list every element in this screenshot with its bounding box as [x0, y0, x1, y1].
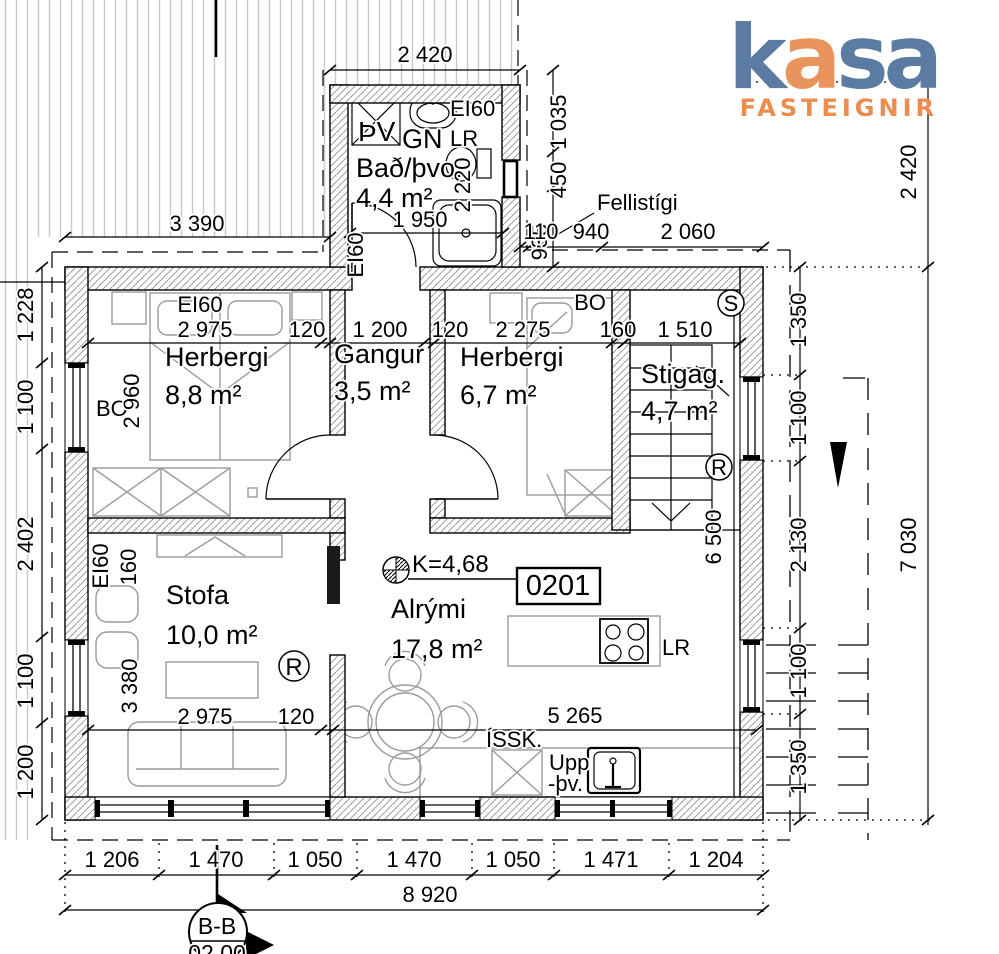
dim-160-top: 160 [600, 317, 637, 342]
dim-2402: 2 402 [13, 516, 38, 571]
dim-5265: 5 265 [547, 703, 602, 728]
exterior-hatch-door [504, 161, 517, 197]
dim-1200-left: 1 200 [13, 744, 38, 799]
dim-1510: 1 510 [657, 317, 712, 342]
window-right-1 [740, 377, 763, 460]
floorplan-page: S R R 0201 B-B 02 00 Bað/þvo. 4,4 m² Her… [0, 0, 999, 954]
dim-2275: 2 275 [495, 317, 550, 342]
unit-number-box: 0201 [517, 568, 600, 604]
dim-1050-b: 1 050 [485, 847, 540, 872]
section-sheet: 02 00 [188, 940, 246, 954]
room-area-bedroom1: 8,8 m² [165, 380, 242, 410]
dishwasher-label-2: -þv. [548, 771, 583, 796]
dim-1470-b: 1 470 [386, 847, 441, 872]
dim-1470-a: 1 470 [188, 847, 243, 872]
room-area-openplan: 17,8 m² [391, 634, 483, 664]
mark-r-label: R [285, 654, 302, 681]
dim-160-living: 160 [116, 549, 141, 586]
room-area-bedroom2: 6,7 m² [460, 380, 537, 410]
stove-icon [600, 619, 648, 663]
window-left-1 [65, 363, 88, 452]
sink-icon [588, 748, 640, 793]
dim-1350-right-b: 1 350 [786, 739, 811, 794]
window-bottom-3 [555, 797, 672, 820]
dim-2130: 2 130 [786, 517, 811, 572]
window-bottom-2 [420, 797, 480, 820]
dim-940: 940 [573, 219, 610, 244]
dim-1050-a: 1 050 [287, 847, 342, 872]
dim-1204: 1 204 [688, 847, 743, 872]
room-name-bedroom1: Herbergi [165, 342, 269, 372]
dim-7030: 7 030 [896, 517, 921, 572]
room-name-living: Stofa [166, 580, 230, 610]
mark-s-label: S [724, 291, 739, 316]
exterior-stair [766, 645, 868, 813]
dim-2975-top: 2 975 [177, 317, 232, 342]
dim-1100-right-b: 1 100 [786, 643, 811, 698]
dim-1200-hall: 1 200 [352, 317, 407, 342]
dim-1471: 1 471 [583, 847, 638, 872]
dim-1206: 1 206 [84, 847, 139, 872]
dim-3380: 3 380 [117, 658, 142, 713]
room-area-living: 10,0 m² [166, 620, 258, 650]
mark-r-label: R [711, 455, 727, 480]
fridge-label: ÍSSK. [486, 727, 542, 752]
dim-1100-left-a: 1 100 [13, 379, 38, 434]
dim-1035: 1 035 [546, 94, 571, 149]
dim-2975-bottom: 2 975 [177, 704, 232, 729]
smoke-detector-mark-s: S [718, 290, 744, 316]
room-name-bath: Bað/þvo. [356, 153, 463, 183]
dim-1350-right-a: 1 350 [786, 292, 811, 347]
ei60-bedroom1-label: EI60 [177, 292, 222, 317]
fellistigi-label: Fellistígi [597, 190, 678, 215]
dim-2220: 2 220 [450, 157, 475, 212]
dim-3390: 3 390 [169, 211, 224, 236]
dim-120-a: 120 [289, 317, 326, 342]
north-arrow-icon [830, 442, 847, 488]
dim-2960: 2 960 [119, 373, 144, 428]
ei60-bath-wall-label: EI60 [343, 232, 368, 277]
dim-120-b: 120 [432, 317, 469, 342]
dim-2420-right: 2 420 [896, 144, 921, 199]
kasa-logo-subtitle: FASTEIGNIR [740, 94, 938, 122]
washer-label: ÞV [358, 116, 396, 147]
dim-6500: 6 500 [701, 509, 726, 564]
sliding-door-living [327, 546, 340, 604]
radiator-mark-r-living: R [279, 651, 309, 681]
ei60-bath-label: EI60 [450, 96, 495, 121]
dim-1100-right-a: 1 100 [786, 390, 811, 445]
radiator-mark-r-stair: R [706, 454, 732, 480]
window-left-2 [65, 640, 88, 716]
dim-2060: 2 060 [660, 219, 715, 244]
room-area-stairwell: 4,7 m² [641, 396, 718, 426]
unit-number: 0201 [526, 570, 591, 602]
dim-1228: 1 228 [13, 287, 38, 342]
lr-kitchen-label: LR [662, 635, 690, 660]
bo-bedroom2-label: BO [574, 290, 606, 315]
gn-label: GN [402, 124, 443, 154]
dim-bath-width: 2 420 [397, 42, 452, 67]
room-name-openplan: Alrými [391, 594, 466, 624]
level-mark-label: K=4,68 [412, 551, 489, 578]
dim-1100-left-b: 1 100 [13, 653, 38, 708]
dim-450: 450 [546, 162, 571, 199]
dim-120-c: 120 [278, 704, 315, 729]
dim-1950: 1 950 [392, 207, 447, 232]
floorplan-drawing: S R R 0201 B-B 02 00 Bað/þvo. 4,4 m² Her… [0, 0, 999, 954]
room-area-hall: 3,5 m² [334, 376, 411, 406]
window-bottom-1 [95, 797, 330, 820]
kasa-logo: kasa FASTEIGNIR [728, 6, 938, 122]
dim-8920: 8 920 [402, 882, 457, 907]
dim-110: 110 [523, 219, 558, 244]
lr-bath-label: LR [450, 126, 478, 151]
room-name-hall: Gangur [334, 339, 424, 369]
room-name-stairwell: Stigag. [641, 359, 725, 389]
window-right-2 [740, 640, 763, 712]
ei60-living-wall-label: EI60 [88, 543, 113, 588]
room-name-bedroom2: Herbergi [460, 342, 564, 372]
section-name: B-B [198, 913, 236, 939]
